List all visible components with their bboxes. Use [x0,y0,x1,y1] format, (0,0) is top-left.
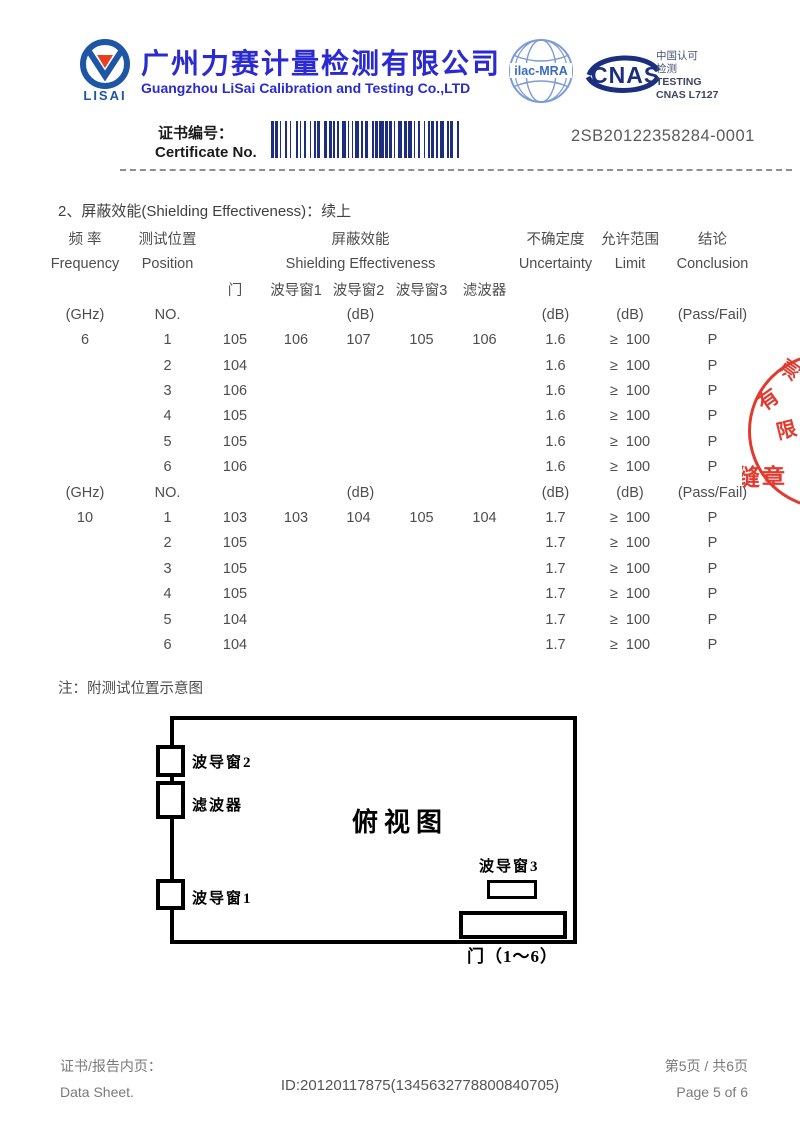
accreditation-line: 中国认可 [656,50,718,63]
table-cell: 1.6 [516,332,595,348]
table-cell: 1.7 [516,586,595,602]
accreditation-line: CNAS L7127 [656,89,718,102]
table-cell: 1 [130,332,205,348]
table-cell: (dB) [516,307,595,323]
svg-text:LISAI: LISAI [83,88,126,103]
table-row: 31061.6≥ 100P [40,378,760,403]
table-cell: ≥ 100 [595,358,665,374]
diagram-title: 俯视图 [352,802,448,839]
table-cell: 1.6 [516,408,595,424]
header-cell: 滤波器 [453,279,516,300]
header-cell: 波导窗1 [265,279,327,300]
footer-page-cn: 第5页 / 共6页 [665,1053,748,1079]
table-cell: 103 [265,510,327,526]
table-cell: ≥ 100 [595,459,665,475]
footer-right: 第5页 / 共6页 Page 5 of 6 [665,1053,748,1105]
waveguide-window-1-box [156,879,185,910]
table-cell: 1.6 [516,383,595,399]
waveguide-window-1-label: 波导窗1 [192,887,253,908]
cnas-icon: CNAS [583,49,663,99]
header-cell: Limit [595,256,665,272]
table-cell: (dB) [205,485,516,501]
header-cell: Position [130,256,205,272]
header-cell: 波导窗2 [327,279,390,300]
table-subheader-row: 门 波导窗1 波导窗2 波导窗3 滤波器 [40,277,760,302]
door-label: 门（1～6） [467,942,558,967]
table-cell: (GHz) [40,307,130,323]
header-cell: 不确定度 [516,228,595,249]
table-cell: ≥ 100 [595,408,665,424]
footer-page-en: Page 5 of 6 [665,1079,748,1105]
header-cell: Shielding Effectiveness [205,256,516,272]
table-cell: NO. [130,485,205,501]
waveguide-window-3-label: 波导窗3 [479,855,540,876]
table-row: (GHz)NO.(dB)(dB)(dB)(Pass/Fail) [40,480,760,505]
table-cell: 106 [205,383,265,399]
waveguide-window-2-label: 波导窗2 [192,751,253,772]
header-cell: 结论 [665,228,760,249]
table-cell: 105 [205,586,265,602]
table-row: 1011031031041051041.7≥ 100P [40,505,760,530]
table-cell: 2 [130,535,205,551]
table-cell: (GHz) [40,485,130,501]
test-position-diagram: 波导窗2 滤波器 波导窗1 波导窗3 门（1～6） 俯视图 [0,710,800,985]
table-cell: 105 [205,535,265,551]
header-cell: 允许范围 [595,228,665,249]
table-cell: ≥ 100 [595,383,665,399]
table-cell: 4 [130,408,205,424]
table-row: 61041.7≥ 100P [40,632,760,657]
table-cell: (dB) [595,307,665,323]
table-row: 21041.6≥ 100P [40,353,760,378]
header-cell: Frequency [40,256,130,272]
table-cell: 5 [130,434,205,450]
header-cell: Conclusion [665,256,760,272]
table-cell: (Pass/Fail) [665,307,760,323]
table-cell: 6 [130,637,205,653]
table-section-title: 2、屏蔽效能(Shielding Effectiveness)：续上 [40,200,760,226]
table-cell: P [665,637,760,653]
table-cell: 2 [130,358,205,374]
table-cell: 1.6 [516,459,595,475]
ilac-mra-text: ilac-MRA [514,64,567,78]
table-cell: ≥ 100 [595,434,665,450]
table-row: 51051.6≥ 100P [40,429,760,454]
footer-left-cn: 证书/报告内页： [60,1053,162,1079]
company-name-cn: 广州力赛计量检测有限公司 [141,42,501,82]
accreditation-line: 检测 [656,63,718,76]
table-cell: 104 [205,612,265,628]
table-header-row-en: Frequency Position Shielding Effectivene… [40,251,760,276]
table-cell: P [665,561,760,577]
table-cell: 6 [130,459,205,475]
dashed-divider [120,169,792,171]
table-cell: 105 [390,510,453,526]
header-cell: 测试位置 [130,228,205,249]
table-row: 61061.6≥ 100P [40,455,760,480]
header-cell: Uncertainty [516,256,595,272]
barcode [271,121,461,158]
note-text: 注：附测试位置示意图 [58,677,203,698]
table-cell: 104 [205,637,265,653]
table-cell: 4 [130,586,205,602]
table-cell: 1.7 [516,612,595,628]
table-row: 21051.7≥ 100P [40,531,760,556]
table-cell: ≥ 100 [595,586,665,602]
header-cell: 波导窗3 [390,279,453,300]
table-cell: 106 [453,332,516,348]
table-row: 41051.6≥ 100P [40,404,760,429]
certificate-label-en: Certificate No. [155,144,257,161]
table-cell: ≥ 100 [595,637,665,653]
header-cell: 屏蔽效能 [205,228,516,249]
certificate-page: LISAI 广州力赛计量检测有限公司 Guangzhou LiSai Calib… [0,0,800,1131]
filter-label: 滤波器 [192,794,243,815]
table-cell: 1.7 [516,561,595,577]
certificate-number: 2SB20122358284-0001 [571,127,755,146]
table-cell: ≥ 100 [595,561,665,577]
table-cell: 105 [390,332,453,348]
table-cell: 1.6 [516,358,595,374]
table-row: 611051061071051061.6≥ 100P [40,328,760,353]
header-cell: 门 [205,279,265,300]
table-cell: 104 [453,510,516,526]
table-cell: 104 [205,358,265,374]
table-cell: 3 [130,561,205,577]
company-name-en: Guangzhou LiSai Calibration and Testing … [141,80,470,96]
certificate-label-cn: 证书编号： [158,122,233,143]
table-row: 51041.7≥ 100P [40,607,760,632]
table-cell: ≥ 100 [595,612,665,628]
accreditation-line: TESTING [656,76,718,89]
table-cell: 103 [205,510,265,526]
table-row: 31051.7≥ 100P [40,556,760,581]
table-cell: 5 [130,612,205,628]
table-cell: P [665,612,760,628]
table-cell: ≥ 100 [595,332,665,348]
table-cell: 1.7 [516,637,595,653]
filter-box [156,781,185,819]
table-cell: ≥ 100 [595,535,665,551]
table-cell: 6 [40,332,130,348]
table-cell: 106 [265,332,327,348]
table-cell: P [665,535,760,551]
table-cell: (dB) [516,485,595,501]
table-cell: 105 [205,434,265,450]
shielding-effectiveness-table: 2、屏蔽效能(Shielding Effectiveness)：续上 频 率 测… [40,200,760,658]
door-box [459,911,567,939]
table-cell: ≥ 100 [595,510,665,526]
header-cell: 频 率 [40,228,130,249]
table-cell: 1 [130,510,205,526]
table-cell: 104 [327,510,390,526]
table-header-row-cn: 频 率 测试位置 屏蔽效能 不确定度 允许范围 结论 [40,226,760,251]
se-table-body: (GHz)NO.(dB)(dB)(dB)(Pass/Fail)611051061… [40,302,760,657]
table-cell: 10 [40,510,130,526]
table-cell: 105 [205,332,265,348]
table-cell: (dB) [595,485,665,501]
lisai-logo-icon: LISAI [72,38,140,104]
cnas-text: CNAS [591,62,660,88]
table-cell: 1.7 [516,510,595,526]
table-cell: 1.7 [516,535,595,551]
table-cell: 3 [130,383,205,399]
table-cell: NO. [130,307,205,323]
table-cell: 105 [205,408,265,424]
table-cell: 105 [205,561,265,577]
waveguide-window-3-box [487,880,537,899]
ilac-mra-icon: ilac-MRA [507,37,575,105]
accreditation-block: 中国认可 检测 TESTING CNAS L7127 [656,50,718,102]
waveguide-window-2-box [156,745,185,777]
table-row: (GHz)NO.(dB)(dB)(dB)(Pass/Fail) [40,302,760,327]
table-cell: P [665,586,760,602]
company-seal-stamp: 测 有 限 骑缝章 [742,352,800,514]
table-cell: P [665,332,760,348]
table-cell: 107 [327,332,390,348]
table-cell: 106 [205,459,265,475]
seal-text: 骑缝章 [742,458,787,492]
table-cell: 1.6 [516,434,595,450]
table-cell: (dB) [205,307,516,323]
table-row: 41051.7≥ 100P [40,581,760,606]
